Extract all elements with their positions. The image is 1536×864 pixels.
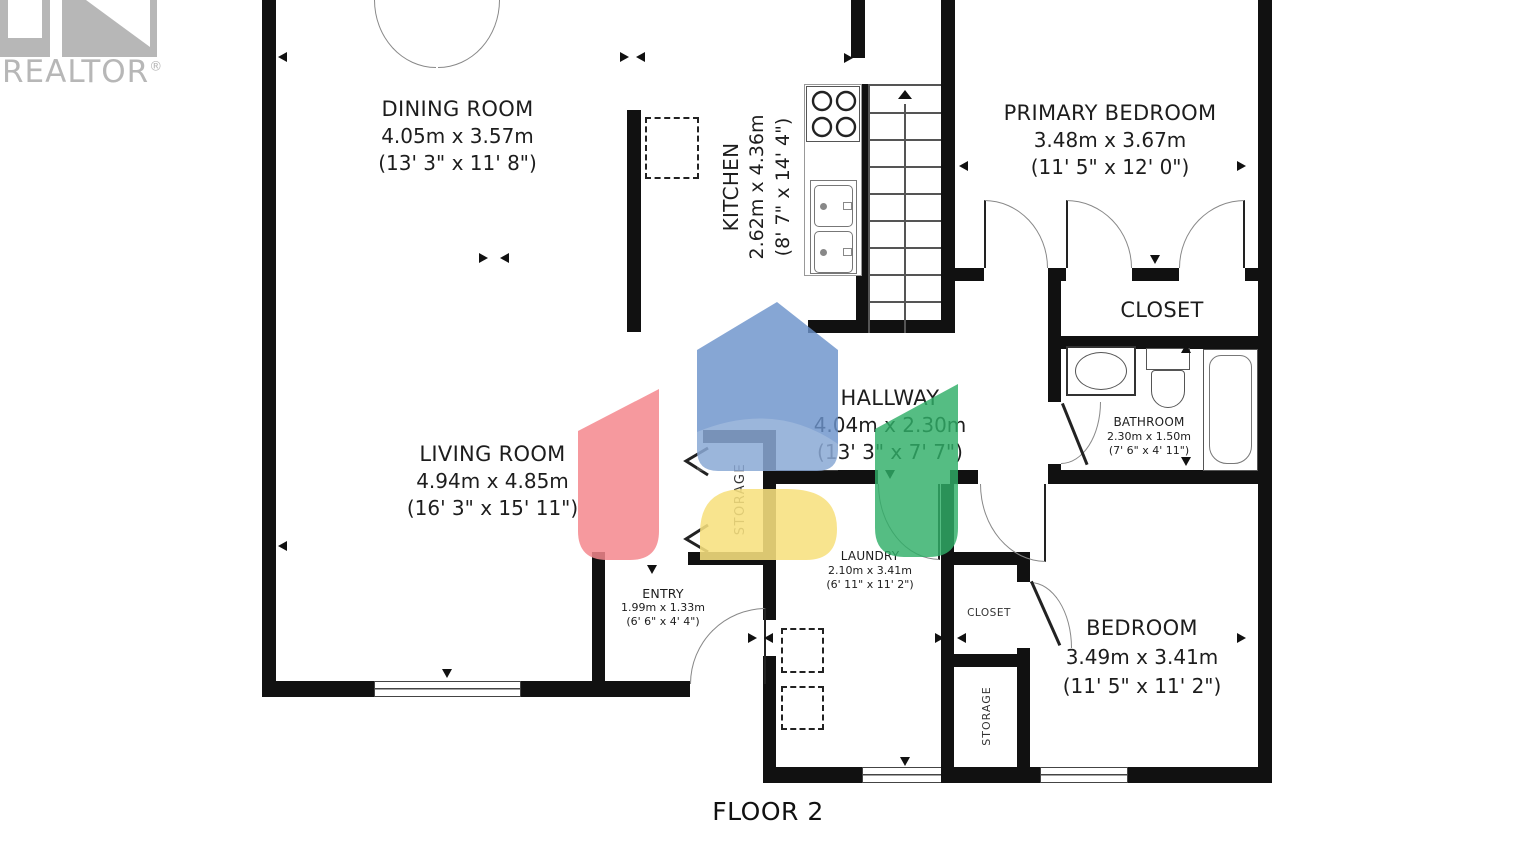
bedroom-door-arc: [980, 484, 1046, 562]
measure-arrow: [957, 633, 966, 643]
room-label-kitchen: KITCHEN 2.62m x 4.36m (8' 7" x 14' 4"): [718, 52, 796, 322]
french-door-arc: [438, 0, 500, 68]
room-label-laundry: LAUNDRY 2.10m x 3.41m (6' 11" x 11' 2"): [800, 549, 940, 592]
measure-arrow: [1150, 255, 1160, 264]
room-label-storage-hall: STORAGE: [733, 449, 749, 549]
measure-arrow: [959, 161, 968, 171]
room-label-closet-bedroom: CLOSET: [958, 607, 1020, 619]
dryer-dashed-box: [781, 686, 824, 730]
room-label-storage-bedroom: STORAGE: [980, 666, 994, 766]
stairs-up-arrow-icon: [898, 90, 912, 99]
measure-arrow: [764, 633, 773, 643]
wall-bottom-exterior: [763, 767, 862, 783]
primary-entry-door-arc: [1179, 200, 1245, 268]
faucet-icon: [820, 249, 827, 256]
realtor-logo-text: REALTOR®: [2, 54, 163, 90]
bathroom-sink-bowl: [1075, 352, 1127, 390]
realtor-r-icon: [0, 0, 170, 60]
measure-arrow: [935, 633, 944, 643]
measure-arrow: [479, 253, 488, 263]
wall-hall-bottom: [776, 470, 878, 484]
wall-hallway-top: [808, 320, 955, 333]
measure-arrow: [844, 53, 853, 63]
measure-arrow: [1237, 161, 1246, 171]
wall-left-exterior: [262, 0, 276, 697]
measure-arrow: [1181, 344, 1191, 353]
french-door-arc: [374, 0, 436, 68]
primary-closet-door-arc: [984, 200, 1048, 268]
room-label-primary-bedroom: PRIMARY BEDROOM 3.48m x 3.67m (11' 5" x …: [985, 100, 1235, 181]
window-bedroom: [1040, 767, 1128, 783]
wall-bottom-exterior: [1128, 767, 1272, 783]
room-label-living: LIVING ROOM 4.94m x 4.85m (16' 3" x 15' …: [365, 441, 620, 522]
wall-entry-bottom: [592, 681, 690, 697]
floor-label: FLOOR 2: [688, 797, 848, 826]
realtor-logo: REALTOR®: [0, 0, 170, 60]
floor-plan: REALTOR®: [0, 0, 1536, 864]
measure-arrow: [620, 52, 629, 62]
toilet-bowl: [1151, 370, 1185, 408]
measure-arrow: [442, 669, 452, 678]
measure-arrow: [500, 253, 509, 263]
wall-primary-bottom: [955, 268, 984, 281]
room-label-hallway: HALLWAY 4.04m x 2.30m (13' 3" x 7' 7"): [765, 385, 1015, 466]
stairs-left-edge: [868, 84, 870, 333]
measure-arrow: [278, 541, 287, 551]
window-living: [374, 681, 521, 697]
room-label-bathroom: BATHROOM 2.30m x 1.50m (7' 6" x 4' 11"): [1093, 415, 1205, 458]
stove-burners-icon: [807, 87, 861, 143]
measure-arrow: [885, 470, 895, 479]
measure-arrow: [647, 565, 657, 574]
wall-bath-left: [1048, 268, 1061, 402]
room-label-bedroom: BEDROOM 3.49m x 3.41m (11' 5" x 11' 2"): [1017, 614, 1267, 701]
stove: [806, 86, 860, 142]
measure-arrow: [1181, 457, 1191, 466]
room-label-entry: ENTRY 1.99m x 1.33m (6' 6" x 4' 4"): [603, 586, 723, 629]
measure-arrow: [278, 52, 287, 62]
sink-tap-icon: [843, 202, 852, 210]
washer-dashed-box: [781, 628, 824, 673]
stairs-center-line: [904, 104, 906, 333]
wall-primary-bottom: [1132, 268, 1179, 281]
room-label-dining: DINING ROOM 4.05m x 3.57m (13' 3" x 11' …: [330, 96, 585, 177]
primary-closet-door-arc: [1066, 200, 1132, 268]
window-laundry: [862, 767, 950, 783]
faucet-icon: [820, 203, 827, 210]
wall-stairs-right: [941, 0, 955, 333]
measure-arrow: [748, 633, 757, 643]
wall-hall-bottom: [950, 470, 978, 484]
wall-primary-bottom: [1245, 268, 1272, 281]
fridge-dashed-box: [645, 117, 699, 179]
sink-tap-icon: [843, 248, 852, 256]
wall-kitchen-partition: [627, 110, 641, 332]
stairs-top-edge: [868, 84, 941, 86]
wall-hall-bottom: [1048, 470, 1272, 484]
wall-living-bottom: [262, 681, 374, 697]
bathtub-inner: [1209, 355, 1252, 464]
measure-arrow: [900, 757, 910, 766]
room-label-closet-primary: CLOSET: [1092, 297, 1232, 324]
measure-arrow: [636, 52, 645, 62]
wall-kitchen-top-stub: [851, 0, 865, 58]
